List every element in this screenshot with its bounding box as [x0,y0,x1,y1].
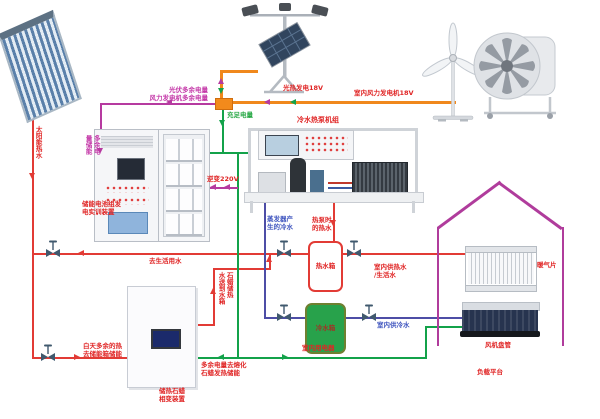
label-inverter: 逆变220V [207,175,239,183]
arrow-paraffin-up-icon [210,288,216,294]
paraffin-screen [151,329,181,349]
label-to-domestic: 去生活用水 [149,257,182,265]
bench-post-right [415,128,418,194]
compressor [290,158,306,192]
house-roof-left [437,181,501,229]
label-fan-coil: 风机盘管 [485,341,511,349]
label-day-excess-heat: 白天多余的热 去储能箱储能 [83,342,122,358]
label-excess-storage-col2: 量储能 [84,135,91,155]
solar-collector-tubes [0,10,82,123]
battery-shelf [166,164,202,187]
arrow-melt-left-icon [218,354,224,360]
pv-tracker [232,2,337,97]
battery-cabinet [158,129,210,242]
heat-pump-bench [244,126,422,216]
junction-box [215,98,233,110]
house-roof-right [498,181,563,230]
arrow-sufficient-down-icon [219,120,225,126]
cabinet-vents [101,136,153,148]
pipe-paraffin-out [193,324,215,326]
system-diagram: 热水箱 冷水箱 太阳能热水 光伏多余电量 风力发电机多余电量 光热发电 [0,0,600,419]
heat-pump-screen [265,135,299,156]
cold-water-tank-label: 冷水箱 [316,324,336,332]
control-cabinet [94,129,160,242]
valve-icon [347,240,361,257]
paraffin-cabinet [127,286,196,388]
house-wall-right [562,227,564,346]
valve-icon [277,240,291,257]
cabinet-buttons-row1 [105,185,149,193]
label-excess-power: 光伏多余电量 风力发电机多余电量 [148,86,208,102]
bench-table-top [244,192,424,203]
label-indoor-cold-water: 室内供冷水 [377,321,410,329]
label-paraffin-device: 储热石蜡 相变装置 [148,387,196,403]
label-paraffin-to-tank-col2: 水送到水箱 [217,272,224,305]
label-excess-melt-paraffin: 多余电量去熔化 石蜡发热储能 [201,361,247,377]
bench-red-pipe [328,182,352,184]
condenser-coil [352,162,408,194]
bench-leg [412,201,415,213]
arrow-appliance-right-icon [282,354,288,360]
battery-shelf [166,139,202,162]
fan-coil-unit [460,300,540,340]
pipe-paraffin-link [213,268,271,270]
label-excess-storage-col1: 多余电 [92,135,99,155]
valve-icon [362,304,376,321]
cabinet-screen [117,158,145,180]
label-load-platform: 负载平台 [477,368,503,376]
wire-sufficient-tee [204,152,249,154]
valve-icon [277,304,291,321]
arrow-solar-down-icon [29,173,35,179]
label-solar-hot-water: 太阳能热水 [34,126,42,159]
pipe-cold-to-fancoil [342,317,464,319]
hot-water-tank-label: 热水箱 [316,262,336,270]
pv-tracker-image [232,2,337,97]
valve-icon [46,240,60,257]
house-wall-left [437,227,439,346]
label-indoor-appliance: 室内用电器 [302,344,335,352]
radiator-fins [468,253,534,284]
axial-fan-image [452,25,572,120]
arrow-inverter-icon [210,184,216,190]
arrow-wind-feed-icon [290,99,296,105]
solar-collector [2,10,82,115]
label-paraffin-to-tank: 石蜡储热 水送到水箱 [217,272,232,305]
pipe-paraffin-riser [213,268,215,326]
label-evaporator-cold: 蒸发器产 生的冷水 [267,215,293,231]
pipe-domestic-hot-left [32,253,309,255]
battery-cabinet-door [163,134,205,237]
label-battery-cabinet: 储能电池组发 电实训装置 [82,200,121,216]
arrow-inverter2-icon [224,184,230,190]
label-paraffin-to-tank-col1: 石蜡储热 [225,272,232,305]
bus-pv-drop [220,70,223,100]
bench-post-left [248,128,251,194]
axial-fan [452,25,572,120]
label-indoor-hot-water: 室内供热水 /生活水 [374,263,407,279]
arrow-domestic-left-icon [78,250,84,256]
radiator-header-bottom [466,285,536,291]
arrow-to-paraffin-icon [74,354,80,360]
heat-pump-control-panel [258,130,354,160]
label-heat-pump-title: 冷水热泵机组 [297,116,339,125]
wire-excess-left [100,103,216,105]
fan-coil-base [460,331,540,337]
arrow-pv-excess-up-icon [218,78,224,84]
receiver [310,170,324,192]
label-excess-storage: 多余电 量储能 [84,135,99,155]
arrow-to-tank-up-icon [266,256,272,262]
pump-box [258,172,286,194]
label-wind-generation: 室内风力发电机18V [354,89,414,97]
label-heatpump-hot: 热泵时 的热水 [312,216,332,232]
radiator [465,246,537,292]
wire-bottom-bus [193,357,427,359]
battery-shelf [166,189,202,212]
wire-sufficient-down [222,108,224,153]
wire-house-riser [425,326,427,359]
label-pv-generation: 光热发电18V [283,84,323,92]
bench-blue-pipe [328,187,352,189]
heat-pump-indicators [304,135,348,154]
arrow-wind-excess-icon [264,99,270,105]
label-radiator: 暖气片 [537,261,557,269]
label-sufficient-power: 充足电量 [227,111,253,119]
fan-coil-grill [462,310,538,331]
bench-leg [250,201,253,213]
hot-water-tank: 热水箱 [308,241,343,292]
battery-shelf [166,214,202,236]
valve-icon [41,344,55,361]
arrow-pv-feed-down-icon [218,88,224,94]
